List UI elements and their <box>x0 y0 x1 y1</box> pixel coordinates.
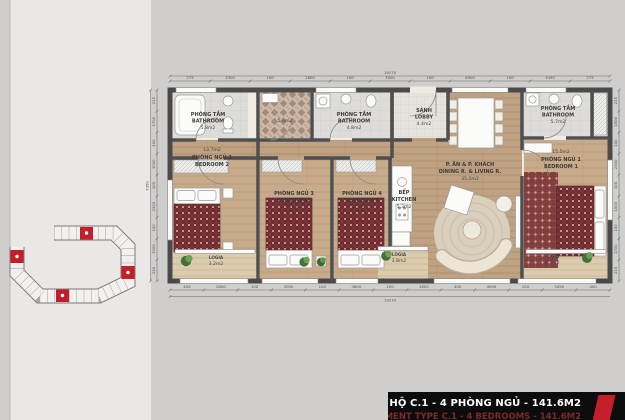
bedroom-3-label-vi: PHÒNG NGỦ 3 <box>274 189 314 197</box>
bathroom-2-label-en: BATHROOM <box>338 119 370 125</box>
bathroom-3-label-en: BATHROOM <box>542 113 574 119</box>
loggia-2-area: 3.8m2 <box>392 258 407 264</box>
lobby-label-en: LOBBY <box>415 115 434 121</box>
plan-subtitle: APARTMENT TYPE C.1 - 4 BEDROOMS - 141.6M… <box>388 412 581 420</box>
svg-text:100: 100 <box>151 139 156 147</box>
bathroom-2-area: 4.8m2 <box>347 125 362 131</box>
floor-plan-sheet: PHÒNG TẮM BATHROOM 5.8m2 5.9m2 PHÒNG TẮM… <box>0 0 625 420</box>
svg-text:100: 100 <box>151 181 156 189</box>
bed-icon <box>174 188 220 252</box>
svg-text:100: 100 <box>319 284 327 289</box>
svg-text:3600: 3600 <box>351 284 361 289</box>
bathroom-3-area: 5.7m2 <box>551 119 566 125</box>
svg-text:3000: 3000 <box>284 284 294 289</box>
bedroom-1-area: 15.5m2 <box>552 149 570 155</box>
bedroom-2-area: 13.7m2 <box>203 147 221 153</box>
sink-icon <box>549 94 559 104</box>
kitchen-area: 5.3m2 <box>397 204 412 210</box>
wardrobe-icon <box>336 160 376 172</box>
svg-text:400: 400 <box>454 284 462 289</box>
armchair <box>496 196 512 212</box>
bedroom-1-label-vi: PHÒNG NGỦ 1 <box>541 155 581 163</box>
svg-text:400: 400 <box>183 284 191 289</box>
svg-text:100: 100 <box>613 139 618 147</box>
svg-text:400: 400 <box>589 284 597 289</box>
svg-text:1000: 1000 <box>151 159 156 169</box>
loggia-2-label: LOGIA <box>392 252 407 257</box>
floor-plan-drawing: PHÒNG TẮM BATHROOM 5.8m2 5.9m2 PHÒNG TẮM… <box>0 0 625 420</box>
svg-text:2300: 2300 <box>613 159 618 169</box>
toilet-icon <box>366 95 376 107</box>
svg-text:100: 100 <box>151 224 156 232</box>
svg-text:4940: 4940 <box>487 284 497 289</box>
svg-text:215: 215 <box>151 266 156 274</box>
red-flag-icon <box>592 395 616 420</box>
svg-text:2300: 2300 <box>151 201 156 211</box>
svg-text:100: 100 <box>522 284 530 289</box>
left-margin-panel <box>10 0 151 420</box>
bed-icon <box>556 186 606 256</box>
lobby-area: 4.4m2 <box>417 121 432 127</box>
washer-icon <box>316 94 330 108</box>
sink-icon <box>223 96 233 106</box>
nightstand-icon <box>223 188 233 198</box>
living-area-label: 35.2m2 <box>461 176 479 182</box>
svg-text:1000: 1000 <box>613 201 618 211</box>
loggia-1-label: LOGIA <box>209 255 224 260</box>
loggia-3-area: 4.2m2 <box>545 260 560 266</box>
svg-text:100: 100 <box>613 181 618 189</box>
bathroom-1-area: 5.8m2 <box>201 125 216 131</box>
svg-text:100: 100 <box>613 224 618 232</box>
bathroom-3-label-vi: PHÒNG TẮM <box>541 104 575 112</box>
bedroom-2-label-vi: PHÒNG NGỦ 2 <box>192 153 232 161</box>
svg-text:215: 215 <box>613 96 618 104</box>
dim-bottom-total: 19270 <box>384 298 397 303</box>
fridge-icon <box>392 232 410 246</box>
living-label-vi: P. ĂN & P. KHÁCH <box>446 161 494 168</box>
bathroom-1-label-vi: PHÒNG TẮM <box>191 110 225 118</box>
toilet-icon <box>223 117 233 129</box>
title-bar: MẶT BẰNG CĂN HỘ C.1 - 4 PHÒNG NGỦ - 141.… <box>388 392 625 420</box>
svg-text:215: 215 <box>613 266 618 274</box>
svg-text:215: 215 <box>151 96 156 104</box>
kitchen-label-vi: BẾP <box>399 188 410 196</box>
dim-left-total: 7350 <box>145 181 150 191</box>
bedroom-4-label-vi: PHÒNG NGỦ 4 <box>342 189 382 197</box>
loggia-1-area: 3.2m2 <box>209 261 224 267</box>
dresser-icon <box>524 143 552 153</box>
lobby-label-vi: SẢNH <box>416 106 432 114</box>
coffee-table-round <box>463 221 481 239</box>
bedroom-3-area: 13.7m2 <box>285 205 303 211</box>
svg-text:1500: 1500 <box>613 116 618 126</box>
bedroom-1-label-en: BEDROOM 1 <box>544 164 578 170</box>
svg-text:2800: 2800 <box>216 284 226 289</box>
bathroom-1-label-en: BATHROOM <box>192 119 224 125</box>
svg-text:3450: 3450 <box>554 284 564 289</box>
bedroom-4-label-en: BEDROOM 4 <box>345 198 379 204</box>
cabinet-icon <box>262 94 278 103</box>
apartment-plan: PHÒNG TẮM BATHROOM 5.8m2 5.9m2 PHÒNG TẮM… <box>145 70 621 303</box>
svg-text:100: 100 <box>251 284 259 289</box>
bathroom-2-label-vi: PHÒNG TẮM <box>337 110 371 118</box>
loggia-3-label: LOGIA <box>545 254 560 259</box>
kitchen-label-en: KITCHEN <box>392 197 417 203</box>
tile-hall-area: 5.9m2 <box>278 118 293 124</box>
svg-text:1700: 1700 <box>613 244 618 254</box>
svg-text:1700: 1700 <box>151 116 156 126</box>
bedroom-3-label-en: BEDROOM 3 <box>277 198 311 204</box>
sink-icon <box>341 94 351 104</box>
svg-text:1600: 1600 <box>419 284 429 289</box>
plan-title: MẶT BẰNG CĂN HỘ C.1 - 4 PHÒNG NGỦ - 141.… <box>388 398 581 409</box>
dim-top-total: 19270 <box>384 70 397 75</box>
washer-icon <box>526 93 539 106</box>
bedroom-4-area: 13.7m2 <box>353 205 371 211</box>
wardrobe-icon <box>594 93 607 135</box>
svg-text:100: 100 <box>386 284 394 289</box>
living-label-en: DINING R. & LIVING R. <box>439 169 502 175</box>
bedroom-2-label-en: BEDROOM 2 <box>195 162 229 168</box>
svg-text:1500: 1500 <box>151 244 156 254</box>
wardrobe-icon <box>262 160 302 172</box>
